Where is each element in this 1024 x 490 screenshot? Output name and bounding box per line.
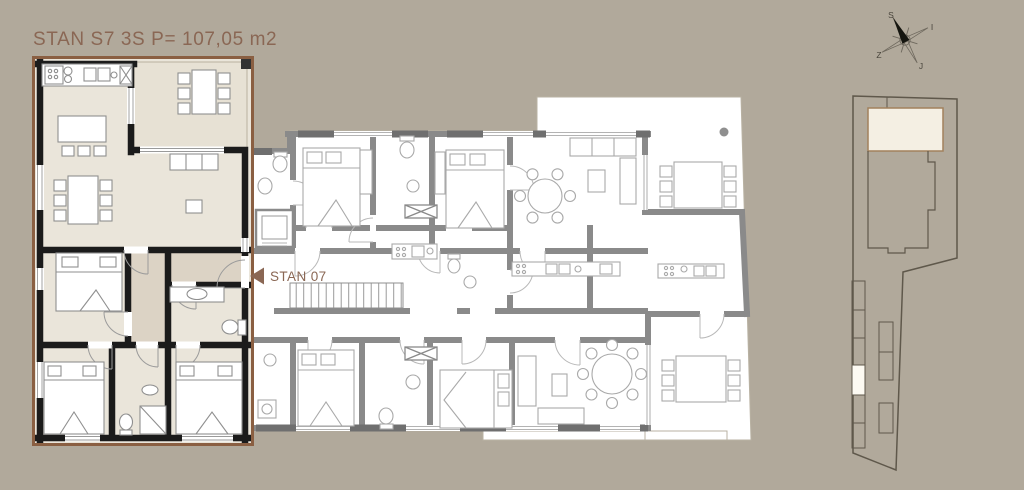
floor-plan-sheet: STAN S7 3S P= 107,05 m2 (0, 0, 1024, 490)
bed (176, 362, 242, 434)
bed (440, 370, 512, 428)
coffee-table (552, 374, 567, 396)
compass-north-label: S (888, 10, 894, 20)
sink (407, 180, 419, 192)
bed (303, 148, 360, 226)
bed (298, 350, 354, 426)
kitchen-counter (512, 262, 620, 276)
sofa (170, 154, 218, 170)
compass-icon: S I Z J (870, 5, 940, 75)
apartment-location-highlight (868, 108, 943, 151)
stan07-callout: STAN 07 (250, 268, 327, 285)
terrace-dining-set (662, 356, 740, 402)
sink (264, 354, 276, 366)
sink (258, 178, 272, 194)
site-plan (852, 96, 957, 470)
sink (406, 375, 420, 389)
bed (446, 150, 504, 228)
terrace-column (720, 128, 729, 137)
toilet (448, 254, 460, 273)
balcony-strip (483, 431, 727, 440)
kitchen-counter (392, 244, 437, 259)
parking-row (852, 281, 893, 448)
building-floor-plan (252, 97, 751, 441)
terrace-dining-set (660, 162, 736, 208)
compass-south-label: J (919, 61, 923, 71)
washing-machine (258, 400, 276, 418)
toilet (379, 408, 393, 429)
round-dining-table (578, 340, 647, 409)
side-table (186, 200, 202, 213)
building-footprint (868, 151, 935, 253)
compass-west-label: Z (876, 50, 881, 60)
kitchen-counter (658, 264, 724, 278)
dining-set (54, 176, 112, 224)
elevator (256, 210, 293, 247)
callout-label: STAN 07 (270, 269, 327, 284)
apartment-s7-plan (34, 58, 253, 445)
kitchen-counter (42, 64, 132, 86)
compass-east-label: I (931, 22, 933, 32)
coffee-table (588, 170, 605, 192)
sink (464, 276, 476, 288)
wardrobe (360, 150, 372, 194)
bed (56, 253, 122, 311)
bed (44, 362, 104, 434)
parking-highlight (853, 366, 865, 395)
wardrobe (435, 152, 445, 194)
kitchen-island (58, 116, 106, 156)
staircase (290, 283, 403, 308)
toilet (273, 152, 287, 172)
toilet (400, 136, 414, 158)
ground-strip (252, 431, 483, 441)
terrace-dining-set (178, 70, 230, 114)
